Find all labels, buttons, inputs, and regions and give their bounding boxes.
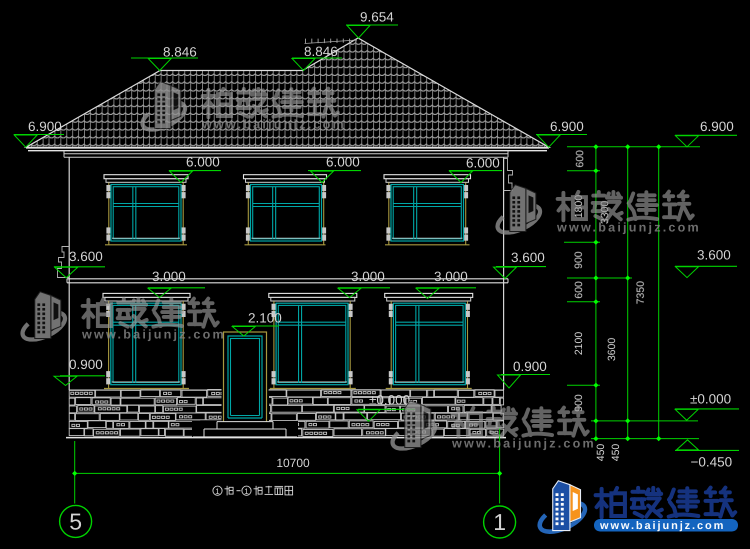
svg-text:6.000: 6.000 <box>326 155 360 170</box>
svg-text:10700: 10700 <box>276 456 310 470</box>
svg-text:3.000: 3.000 <box>152 269 186 284</box>
svg-text:3.600: 3.600 <box>697 248 731 263</box>
svg-text:2100: 2100 <box>573 332 585 356</box>
svg-text:7350: 7350 <box>635 281 647 305</box>
svg-text:600: 600 <box>574 150 586 168</box>
svg-text:8.846: 8.846 <box>163 45 197 60</box>
svg-text:0.900: 0.900 <box>69 357 103 372</box>
svg-text:6.000: 6.000 <box>186 155 220 170</box>
svg-text:0.900: 0.900 <box>513 359 547 374</box>
svg-text:www.baijunjz.com: www.baijunjz.com <box>451 437 596 451</box>
svg-text:6.000: 6.000 <box>466 156 500 171</box>
svg-text:8.846: 8.846 <box>304 44 338 59</box>
svg-text:5: 5 <box>69 509 82 535</box>
svg-text:±0.000: ±0.000 <box>690 392 731 407</box>
svg-text:3.000: 3.000 <box>434 269 468 284</box>
svg-text:−0.450: −0.450 <box>691 455 733 470</box>
svg-text:450: 450 <box>595 444 607 462</box>
svg-text:6.900: 6.900 <box>28 119 62 134</box>
svg-text:3.600: 3.600 <box>69 249 103 264</box>
svg-text:www.baijunjz.com: www.baijunjz.com <box>556 221 701 235</box>
svg-text:6.900: 6.900 <box>550 119 584 134</box>
svg-text:600: 600 <box>573 281 585 299</box>
svg-text:www.baijunjz.com: www.baijunjz.com <box>201 118 346 132</box>
svg-text:1: 1 <box>215 487 220 496</box>
svg-text:3600: 3600 <box>606 338 618 362</box>
svg-text:±0.000: ±0.000 <box>369 393 410 408</box>
svg-text:1: 1 <box>493 509 506 535</box>
svg-text:2.100: 2.100 <box>248 311 282 326</box>
svg-text:450: 450 <box>610 444 622 462</box>
svg-text:6.900: 6.900 <box>700 119 734 134</box>
svg-text:1: 1 <box>244 487 249 496</box>
svg-text:900: 900 <box>573 251 585 269</box>
svg-text:9.654: 9.654 <box>360 10 394 25</box>
svg-text:3.000: 3.000 <box>351 269 385 284</box>
svg-text:www.baijunjz.com: www.baijunjz.com <box>81 328 226 342</box>
svg-text:3.600: 3.600 <box>511 250 545 265</box>
svg-text:www.baijunjz.com: www.baijunjz.com <box>599 520 725 532</box>
